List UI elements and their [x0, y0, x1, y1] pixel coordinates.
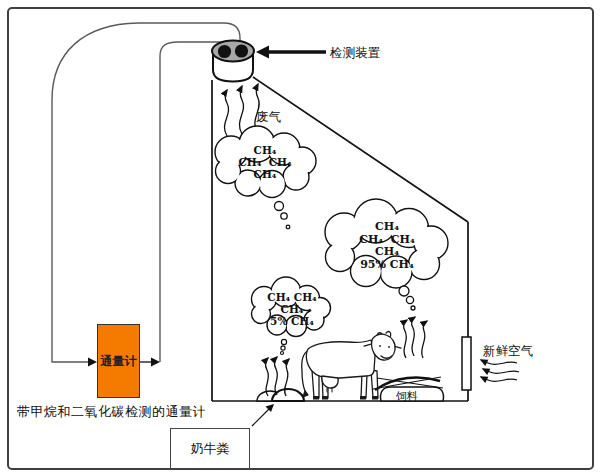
cow-emission-arrows: [404, 317, 427, 358]
feed-label: 饲料: [396, 389, 418, 404]
methane-cloud-middle-text: CH₄ CH₄ CH₄ CH₄ 95% CH₄: [328, 221, 446, 271]
flux-meter-box: 通量计: [97, 324, 140, 398]
thought-bubbles-bottom: [281, 339, 287, 354]
detector-pointer-arrow: [256, 46, 326, 59]
fresh-air-arrows: [481, 360, 519, 382]
air-vent: [462, 337, 471, 390]
methane-cloud-bottom-text: CH₄ CH₄ CH₄ 5% CH₄: [251, 291, 333, 327]
methane-cloud-top-text: CH₄ CH₄ CH₄ CH₄: [212, 144, 318, 180]
thought-bubbles-top: [275, 202, 290, 229]
detector-device: [212, 41, 254, 82]
detector-port-right: [235, 44, 248, 57]
manure-label: 奶牛粪: [191, 440, 230, 458]
manure-label-box: 奶牛粪: [170, 428, 250, 469]
detector-label: 检测装置: [330, 45, 380, 62]
detector-port-left: [218, 45, 231, 58]
fresh-air-label: 新鲜空气: [483, 343, 533, 360]
manure-piles: [257, 389, 304, 401]
manure-callout-arrow: [252, 404, 274, 426]
flux-meter-caption: 带甲烷和二氧化碳检测的通量计: [17, 403, 206, 421]
methane-chamber-diagram: 检测装置 废气 新鲜空气 饲料 CH₄ CH₄ CH₄ CH₄ CH₄ CH₄ …: [0, 0, 600, 476]
thought-bubbles-middle: [399, 286, 415, 310]
flux-meter-label: 通量计: [101, 353, 137, 370]
waste-gas-label: 废气: [256, 109, 281, 126]
